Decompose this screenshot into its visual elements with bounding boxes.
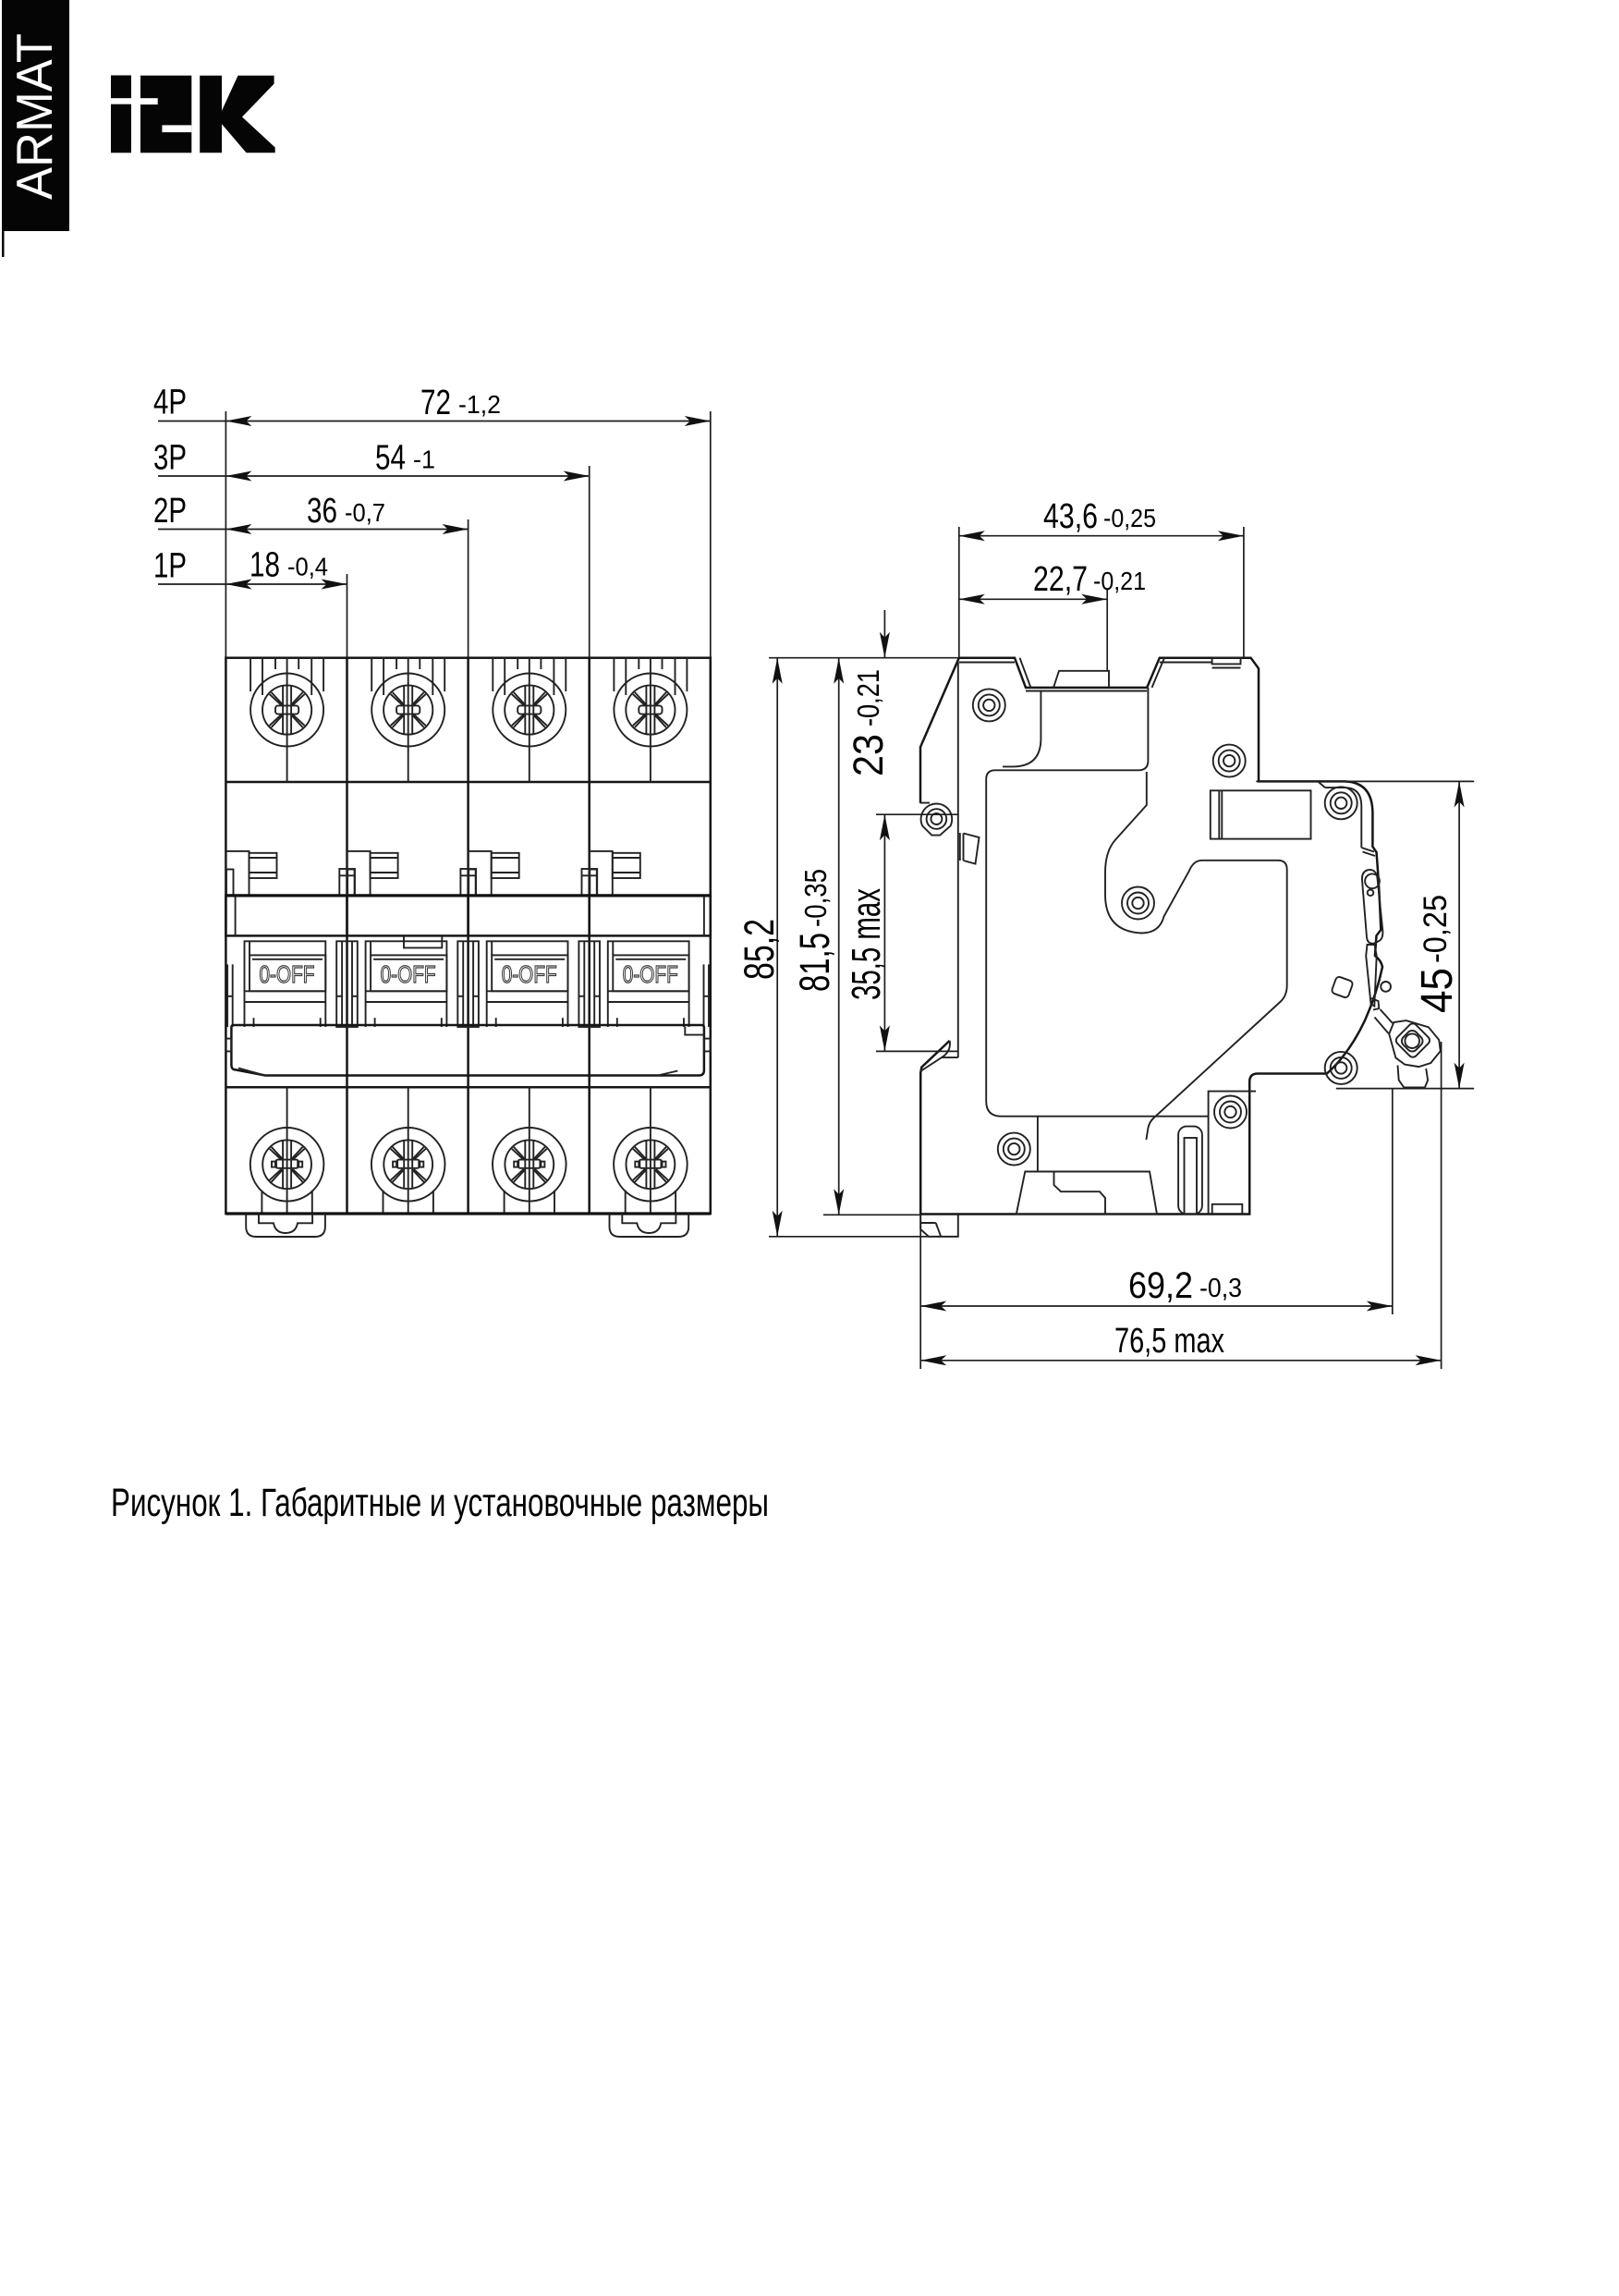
svg-text:-0,35: -0,35 [798,869,833,927]
svg-text:-0,3: -0,3 [1199,1274,1242,1303]
svg-text:1P: 1P [153,547,187,586]
svg-text:36: 36 [307,492,337,531]
svg-text:43,6: 43,6 [1043,497,1098,536]
svg-text:72: 72 [420,384,451,422]
svg-text:3P: 3P [153,439,187,478]
svg-text:-0,25: -0,25 [1418,895,1454,963]
svg-text:-0,21: -0,21 [851,669,885,727]
svg-text:23: 23 [845,734,892,776]
svg-text:76,5 max: 76,5 max [1114,1322,1224,1361]
svg-text:45: 45 [1413,968,1462,1013]
svg-text:-0,21: -0,21 [1093,567,1146,595]
svg-text:-0,7: -0,7 [345,498,385,527]
svg-text:-0,25: -0,25 [1103,504,1156,532]
svg-text:54: 54 [375,439,406,478]
svg-text:-0,4: -0,4 [287,553,328,581]
svg-text:22,7: 22,7 [1033,560,1088,599]
svg-text:81,5: 81,5 [791,933,838,992]
svg-text:85,2: 85,2 [736,919,783,980]
svg-text:0-OFF: 0-OFF [260,960,315,988]
svg-text:-1,2: -1,2 [458,390,501,419]
svg-text:18: 18 [250,546,280,585]
svg-text:35,5 max: 35,5 max [844,888,889,1000]
svg-text:2P: 2P [153,492,187,531]
svg-text:ARMAT: ARMAT [6,33,63,200]
svg-text:69,2: 69,2 [1128,1265,1193,1306]
svg-text:Рисунок 1. Габаритные и устано: Рисунок 1. Габаритные и установочные раз… [111,1481,769,1525]
svg-text:-1: -1 [413,446,435,474]
svg-text:4P: 4P [153,384,187,422]
